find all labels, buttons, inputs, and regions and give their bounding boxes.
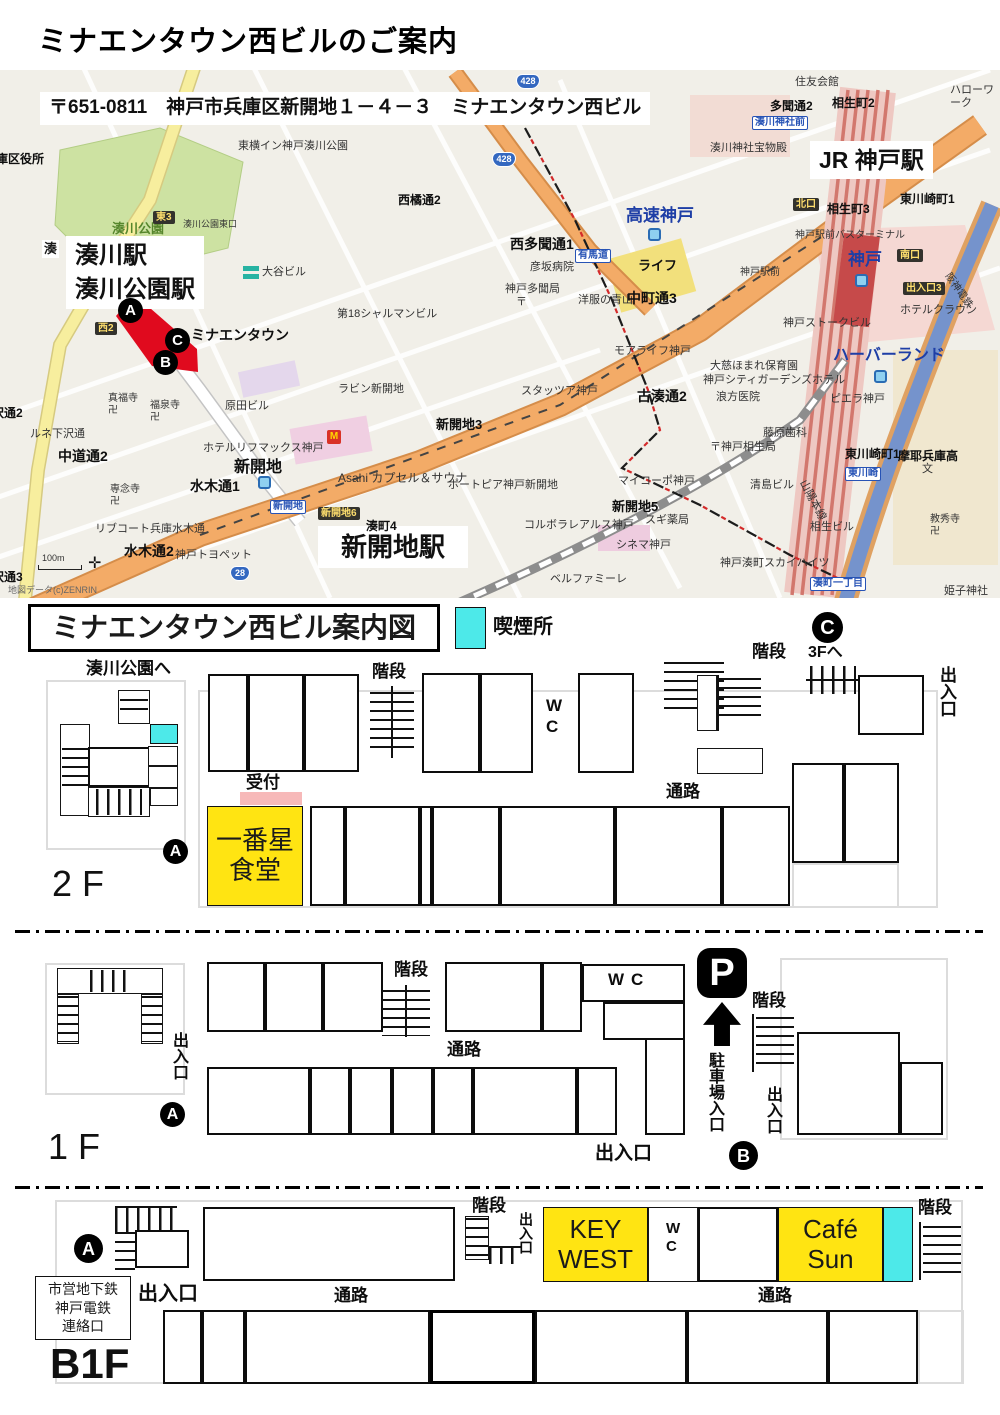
floor-label: 階段 xyxy=(372,662,406,683)
road-sign: 東川崎 xyxy=(845,467,881,481)
map-label: 中町通3 xyxy=(627,290,677,307)
road-sign: 南口 xyxy=(897,249,923,262)
room xyxy=(697,748,763,774)
map-label: 住友会館 xyxy=(795,76,839,89)
marker-b-1f: B xyxy=(729,1141,758,1170)
floor-label: 階段 xyxy=(472,1196,506,1217)
stairs-icon xyxy=(58,996,78,1042)
map-label: 神戸駅前 xyxy=(740,267,780,279)
line xyxy=(405,985,407,1037)
map-credit: 地図データ(c)ZENRIN xyxy=(8,585,97,596)
floor-label: 階段 xyxy=(752,642,786,663)
room-key-west: KEY WEST xyxy=(543,1207,648,1282)
map-label: ホテルリフマックス神戸 xyxy=(203,442,324,455)
room xyxy=(645,1038,685,1135)
reception-label: 受付 xyxy=(246,773,280,794)
reception-counter xyxy=(240,792,302,805)
stairs-icon xyxy=(90,970,130,992)
smoking-area-2f xyxy=(150,724,178,744)
floor-guide-title: ミナエンタウン西ビル案内図 xyxy=(28,604,440,652)
map-callout: 湊 xyxy=(42,240,59,258)
parking-entrance-label: 駐車場入口 xyxy=(706,1052,722,1144)
wc-1f: WC xyxy=(608,970,650,991)
map-label: 藤原歯科 xyxy=(763,427,807,440)
room xyxy=(722,806,790,906)
exit-2f: 出入口 xyxy=(938,666,955,736)
to-3f: 3Fへ xyxy=(808,643,843,663)
kosoku-kobe-station-label: 高速神戸 xyxy=(626,206,694,227)
stairs-icon xyxy=(96,789,142,815)
room xyxy=(135,1230,189,1268)
route-shield: 428 xyxy=(492,152,516,167)
floor-name-b1f: B1F xyxy=(50,1338,129,1389)
stairs-icon xyxy=(489,1248,521,1264)
map-label: ポートピア神戸新開地 xyxy=(448,479,558,492)
stairs-icon xyxy=(466,1218,488,1258)
floor-label: 階段 xyxy=(752,991,786,1012)
map-label: ルネ下沢通 xyxy=(30,428,85,441)
room xyxy=(844,763,899,863)
room xyxy=(432,806,500,906)
map-label: 東川崎町1 xyxy=(900,192,955,207)
room xyxy=(603,1002,685,1040)
address-callout: 〒651-0811 神戸市兵庫区新開地１－４－３ ミナエンタウン西ビル xyxy=(40,92,650,125)
corridor-b1f-west: 通路 xyxy=(334,1286,368,1307)
corridor-b1f-east: 通路 xyxy=(758,1286,792,1307)
jr-kobe-station-callout: JR 神戸駅 xyxy=(810,141,933,179)
map-label: 神戸トヨペット xyxy=(175,549,252,562)
map-label: 湊川神社宝物殿 xyxy=(710,142,787,155)
map-label: 多聞通2 xyxy=(770,99,813,114)
stairs-icon xyxy=(115,1208,177,1232)
room xyxy=(202,1310,245,1384)
area-outline xyxy=(792,863,899,908)
map-label: リブコート兵庫水木通 xyxy=(95,523,205,536)
area-outline xyxy=(918,1310,964,1384)
room xyxy=(163,1310,202,1384)
room xyxy=(207,962,265,1032)
map-label: 西多聞通1 xyxy=(510,236,574,253)
room xyxy=(792,763,844,863)
map-marker-b: B xyxy=(153,350,178,375)
wc-b1f: W C xyxy=(666,1220,680,1257)
marker-a-b1f: A xyxy=(74,1234,103,1263)
map-label: 専念寺 卍 xyxy=(110,484,140,508)
floor-label: 階段 xyxy=(918,1198,952,1219)
map-label: 水木通2 xyxy=(124,543,174,560)
road-sign: 新開地 xyxy=(270,500,306,514)
room xyxy=(473,1067,577,1135)
map-label: 水木通1 xyxy=(190,478,240,495)
compass-icon: ✛ xyxy=(88,554,101,574)
minaen-town-label: ミナエンタウン xyxy=(191,327,289,344)
map-label: 教秀寺 卍 xyxy=(930,514,960,538)
room xyxy=(310,806,345,906)
map-label: マイコーポ神戸 xyxy=(618,475,695,488)
road-sign: 湊川神社前 xyxy=(752,116,808,130)
room xyxy=(535,1310,687,1384)
room xyxy=(500,806,615,906)
room xyxy=(392,1067,433,1135)
road-sign: 出入口3 xyxy=(903,282,945,295)
station-icon xyxy=(258,476,271,489)
map-label: 新開地 xyxy=(234,458,282,478)
smoking-area-b1f xyxy=(883,1207,913,1282)
parking-badge: P xyxy=(697,948,747,998)
map-label: 湊川公園東口 xyxy=(183,219,237,230)
map-label: 神戸駅前バスターミナル xyxy=(795,230,905,242)
room xyxy=(148,746,178,766)
map-label: 真福寺 卍 xyxy=(108,393,138,417)
annotation-layer: 〒651-0811 神戸市兵庫区新開地１－４－３ ミナエンタウン西ビル湊川駅 湊… xyxy=(0,0,1000,1415)
station-icon xyxy=(855,274,868,287)
route-shield: 28 xyxy=(230,566,250,581)
divider-1f-b1f xyxy=(15,1186,983,1189)
station-icon xyxy=(874,370,887,383)
floor-label: 階段 xyxy=(394,960,428,981)
map-label: 〒神戸相生局 xyxy=(710,441,776,454)
map-label: モアライフ神戸 xyxy=(614,345,691,358)
room xyxy=(797,1032,900,1135)
smoking-legend-swatch xyxy=(455,607,486,649)
floor-name-1f: 1 F xyxy=(48,1125,100,1169)
map-label: 浪方医院 xyxy=(716,391,760,404)
room xyxy=(323,962,383,1032)
map-label: 100m xyxy=(42,553,65,564)
kobe-station-label: 神戸 xyxy=(848,250,882,271)
stairs-icon xyxy=(923,1226,961,1278)
smoking-legend-label: 喫煙所 xyxy=(493,615,553,639)
road-sign: 有馬道 xyxy=(575,249,611,263)
room xyxy=(207,1067,310,1135)
map-label: 洋服の青山 xyxy=(578,294,633,307)
room xyxy=(345,806,420,906)
map-label: 下沢通3 xyxy=(0,570,23,585)
map-label: ハローワーク xyxy=(950,84,1000,111)
room xyxy=(350,1067,392,1135)
parking-entrance-arrow xyxy=(703,1002,741,1046)
map-label: 原田ビル xyxy=(225,400,269,413)
map-marker-c: C xyxy=(165,328,190,353)
map-label: 神戸ストークビル xyxy=(783,317,871,330)
room xyxy=(445,962,542,1032)
subway-connection-box: 市営地下鉄 神戸電鉄 連絡口 xyxy=(35,1276,131,1340)
map-label: シネマ神戸 xyxy=(616,539,671,552)
road-sign: 湊町一丁目 xyxy=(810,577,866,591)
marker-a-1f: A xyxy=(160,1102,185,1127)
map-label: 姫子神社 xyxy=(944,585,988,598)
exit-1f-east: 出入口 xyxy=(764,1086,780,1144)
map-label: ベルファミーレ xyxy=(550,573,627,586)
map-label: 湊町4 xyxy=(366,519,397,534)
divider-2f-1f xyxy=(15,930,983,933)
map-label: スギ薬局 xyxy=(645,514,689,527)
room xyxy=(900,1062,943,1135)
map-label: 神戸湊町スカイハイツ xyxy=(720,557,830,570)
room xyxy=(310,1067,350,1135)
corridor-1f: 通路 xyxy=(447,1040,481,1061)
room xyxy=(148,766,178,788)
stairs-icon xyxy=(756,1017,794,1069)
map-label: スタッツア神戸 xyxy=(521,385,598,398)
line xyxy=(919,1222,921,1280)
map-marker-a: A xyxy=(118,298,143,323)
room xyxy=(422,673,480,773)
map-label: 新開地3 xyxy=(436,417,482,433)
map-label: 相生町2 xyxy=(832,96,875,111)
marker-c-stairs: C xyxy=(812,612,843,643)
route-shield: 428 xyxy=(516,74,540,89)
line xyxy=(391,686,393,758)
map-label: 大谷ビル xyxy=(262,266,306,279)
room xyxy=(203,1207,455,1281)
room xyxy=(542,962,582,1032)
map-label: ピエラ神戸 xyxy=(830,393,885,406)
map-label: ライフ xyxy=(638,258,677,274)
map-label: 第18シャルマンビル xyxy=(337,308,437,321)
exit-1f-south: 出入口 xyxy=(595,1142,652,1165)
map-label: 兵庫区役所 xyxy=(0,152,44,167)
map-label: 古湊通2 xyxy=(637,388,687,405)
marker-a-2f: A xyxy=(163,839,188,864)
room xyxy=(88,747,150,787)
room xyxy=(430,1310,535,1384)
room xyxy=(615,806,722,906)
room xyxy=(698,1207,778,1282)
map-label: 西橘通2 xyxy=(398,193,441,208)
map-label: ラビン新開地 xyxy=(338,383,404,396)
room xyxy=(578,673,634,773)
map-label: 東横イン神戸湊川公園 xyxy=(238,140,348,153)
room xyxy=(687,1310,828,1384)
floor-name-2f: 2 F xyxy=(52,862,104,906)
room xyxy=(577,1067,617,1135)
map-label: 下沢通2 xyxy=(0,406,23,421)
line xyxy=(717,675,719,731)
road-sign: 西2 xyxy=(95,322,117,335)
room xyxy=(433,1067,473,1135)
map-label: 新開地5 xyxy=(612,499,658,515)
line xyxy=(806,679,860,681)
wc-2f: W C xyxy=(546,696,562,737)
room xyxy=(208,674,248,772)
stairs-icon xyxy=(719,678,761,718)
map-label: 相生町3 xyxy=(827,202,870,217)
map-label: 大慈ほまれ保育園 xyxy=(710,360,798,373)
station-icon xyxy=(648,228,661,241)
map-label: 福泉寺 卍 xyxy=(150,400,180,424)
room xyxy=(248,674,304,772)
map-label: 文 xyxy=(922,463,933,476)
map-label: 神戸多聞局 〒 xyxy=(505,283,560,310)
road-sign: 新開地6 xyxy=(318,507,360,520)
mcdonalds-icon: M xyxy=(327,430,341,444)
room xyxy=(480,673,533,773)
exit-b1f-center: 出入口 xyxy=(519,1212,533,1268)
harborland-station-label: ハーバーランド xyxy=(833,346,945,366)
road-sign: 北口 xyxy=(793,198,819,211)
room xyxy=(420,806,432,906)
map-label: 中道通2 xyxy=(58,448,108,465)
stairs-icon xyxy=(142,996,162,1042)
room xyxy=(265,962,323,1032)
map-label: 山陽本線 xyxy=(796,478,828,523)
room xyxy=(304,674,359,772)
map-label: コルボラレアルス神戸 xyxy=(524,519,634,532)
room-ichibanboshi-shokudo: 一番星 食堂 xyxy=(207,806,303,906)
to-minatogawa-park: 湊川公園へ xyxy=(86,659,171,680)
stairs-icon xyxy=(115,1232,135,1270)
stairs-icon xyxy=(120,699,148,716)
exit-1f-west: 出入口 xyxy=(170,1032,186,1094)
room-cafe-sun: Café Sun xyxy=(778,1207,883,1282)
room xyxy=(245,1310,430,1384)
exit-b1f-west: 出入口 xyxy=(138,1282,198,1306)
stairs-icon xyxy=(62,748,88,786)
map-label: 清島ビル xyxy=(750,479,794,492)
corridor-2f: 通路 xyxy=(666,782,700,803)
room xyxy=(150,788,178,806)
guide-sheet: ミナエンタウン西ビルのご案内 xyxy=(0,0,1000,1415)
scale-bar xyxy=(38,565,82,570)
map-label: 神戸シティガーデンズホテル xyxy=(703,374,845,387)
room xyxy=(828,1310,918,1384)
line xyxy=(752,1014,754,1072)
road-sign: 東3 xyxy=(153,211,175,224)
map-label: 彦坂病院 xyxy=(530,261,574,274)
room xyxy=(858,675,924,735)
map-label: 東川崎町1 xyxy=(845,447,900,462)
map-label: 摩耶兵庫高 xyxy=(898,449,958,464)
room xyxy=(697,675,717,731)
